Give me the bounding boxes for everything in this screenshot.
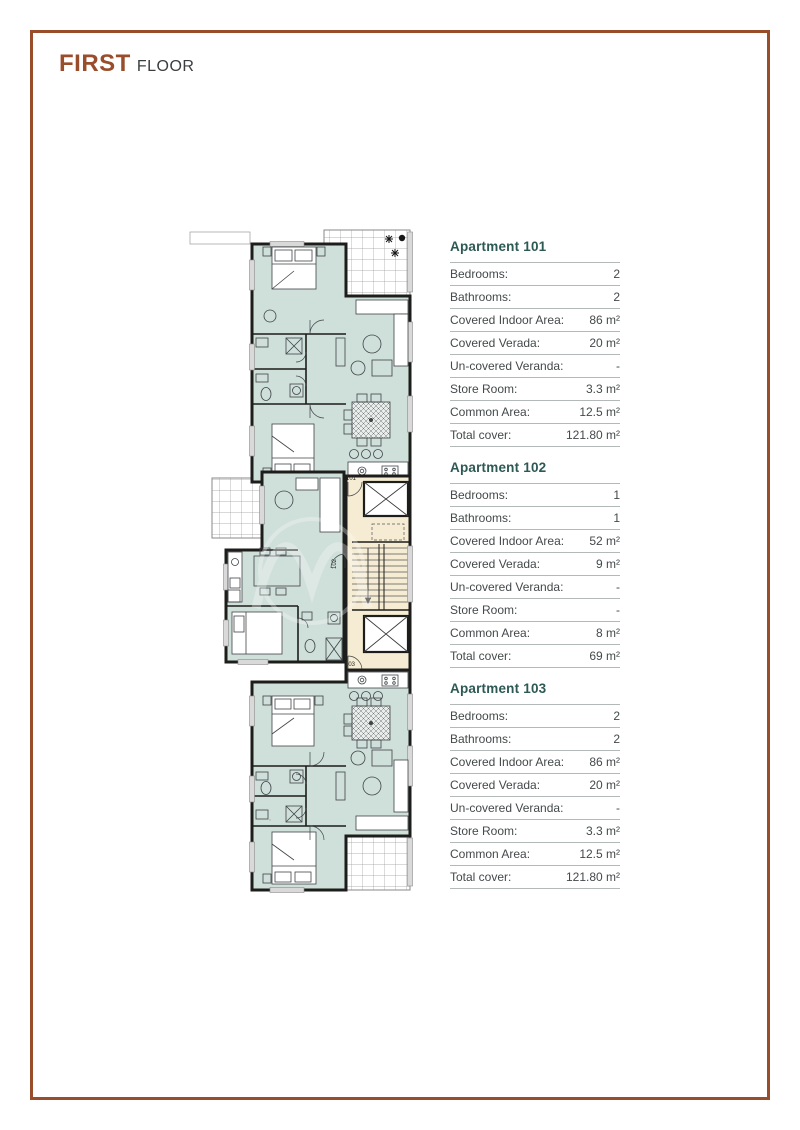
floor-plan: 101 102 103 (186, 226, 440, 894)
spec-row: Bedrooms: 2 (450, 705, 620, 728)
spec-row: Store Room: - (450, 599, 620, 622)
spec-label: Bathrooms: (450, 290, 511, 304)
spec-label: Covered Verada: (450, 778, 540, 792)
spec-row: Bathrooms: 2 (450, 728, 620, 751)
spec-value: 121.80 m² (566, 428, 620, 442)
spec-row: Un-covered Veranda: - (450, 355, 620, 378)
spec-label: Total cover: (450, 428, 511, 442)
spec-label: Store Room: (450, 824, 517, 838)
spec-row: Common Area: 8 m² (450, 622, 620, 645)
elevator-shaft-top (364, 482, 408, 516)
spec-label: Total cover: (450, 649, 511, 663)
spec-rows: Bedrooms: 2 Bathrooms: 2 Covered Indoor … (450, 704, 620, 889)
unit-label-103: 103 (345, 662, 356, 668)
apartment-spec-table: Apartment 103 Bedrooms: 2 Bathrooms: 2 C… (450, 680, 620, 889)
spec-row: Total cover: 121.80 m² (450, 424, 620, 447)
spec-row: Store Room: 3.3 m² (450, 378, 620, 401)
spec-value: 86 m² (589, 313, 620, 327)
spec-label: Store Room: (450, 603, 517, 617)
unit-label-101: 101 (346, 476, 357, 482)
spec-label: Bedrooms: (450, 709, 508, 723)
spec-row: Covered Indoor Area: 86 m² (450, 751, 620, 774)
spec-value: 1 (613, 488, 620, 502)
spec-label: Covered Indoor Area: (450, 313, 564, 327)
spec-label: Un-covered Veranda: (450, 359, 563, 373)
elevator-shaft-bottom (364, 616, 408, 652)
apartment-title: Apartment 102 (450, 459, 620, 477)
spec-label: Un-covered Veranda: (450, 801, 563, 815)
spec-value: 12.5 m² (579, 847, 620, 861)
spec-row: Bathrooms: 1 (450, 507, 620, 530)
roof-ledge (190, 232, 250, 244)
spec-row: Bathrooms: 2 (450, 286, 620, 309)
spec-row: Covered Verada: 20 m² (450, 332, 620, 355)
spec-value: 69 m² (589, 649, 620, 663)
spec-label: Bedrooms: (450, 267, 508, 281)
spec-row: Covered Verada: 9 m² (450, 553, 620, 576)
spec-row: Covered Indoor Area: 52 m² (450, 530, 620, 553)
apartment-tables: Apartment 101 Bedrooms: 2 Bathrooms: 2 C… (450, 238, 620, 901)
spec-value: 9 m² (596, 557, 620, 571)
spec-value: 2 (613, 290, 620, 304)
page-title: FIRSTFLOOR (59, 50, 194, 78)
spec-row: Total cover: 69 m² (450, 645, 620, 668)
spec-label: Bathrooms: (450, 732, 511, 746)
unit-label-102: 102 (332, 558, 338, 569)
apartment-spec-table: Apartment 101 Bedrooms: 2 Bathrooms: 2 C… (450, 238, 620, 447)
spec-label: Total cover: (450, 870, 511, 884)
spec-rows: Bedrooms: 2 Bathrooms: 2 Covered Indoor … (450, 262, 620, 447)
spec-value: 2 (613, 709, 620, 723)
spec-label: Common Area: (450, 847, 530, 861)
spec-value: 8 m² (596, 626, 620, 640)
apartment-title: Apartment 101 (450, 238, 620, 256)
spec-value: 2 (613, 732, 620, 746)
spec-value: 121.80 m² (566, 870, 620, 884)
spec-value: 20 m² (589, 778, 620, 792)
spec-label: Store Room: (450, 382, 517, 396)
spec-value: 1 (613, 511, 620, 525)
spec-value: 20 m² (589, 336, 620, 350)
spec-row: Total cover: 121.80 m² (450, 866, 620, 889)
spec-rows: Bedrooms: 1 Bathrooms: 1 Covered Indoor … (450, 483, 620, 668)
spec-label: Common Area: (450, 626, 530, 640)
spec-value: - (616, 359, 620, 373)
spec-value: 3.3 m² (586, 382, 620, 396)
spec-value: 52 m² (589, 534, 620, 548)
spec-label: Covered Verada: (450, 336, 540, 350)
spec-value: 3.3 m² (586, 824, 620, 838)
spec-row: Common Area: 12.5 m² (450, 401, 620, 424)
title-floor-word: FLOOR (137, 58, 195, 75)
spec-label: Bedrooms: (450, 488, 508, 502)
spec-value: 86 m² (589, 755, 620, 769)
spec-label: Covered Indoor Area: (450, 755, 564, 769)
spec-value: - (616, 801, 620, 815)
title-floor-number: FIRST (59, 50, 131, 77)
spec-value: 2 (613, 267, 620, 281)
spec-label: Un-covered Veranda: (450, 580, 563, 594)
spec-label: Covered Verada: (450, 557, 540, 571)
spec-value: - (616, 580, 620, 594)
veranda-102 (212, 478, 261, 538)
spec-label: Bathrooms: (450, 511, 511, 525)
spec-label: Covered Indoor Area: (450, 534, 564, 548)
spec-row: Un-covered Veranda: - (450, 797, 620, 820)
spec-row: Store Room: 3.3 m² (450, 820, 620, 843)
spec-row: Bedrooms: 1 (450, 484, 620, 507)
apartment-title: Apartment 103 (450, 680, 620, 698)
spec-row: Un-covered Veranda: - (450, 576, 620, 599)
spec-row: Bedrooms: 2 (450, 263, 620, 286)
spec-value: - (616, 603, 620, 617)
spec-row: Covered Verada: 20 m² (450, 774, 620, 797)
spec-label: Common Area: (450, 405, 530, 419)
apartment-spec-table: Apartment 102 Bedrooms: 1 Bathrooms: 1 C… (450, 459, 620, 668)
spec-row: Covered Indoor Area: 86 m² (450, 309, 620, 332)
spec-value: 12.5 m² (579, 405, 620, 419)
floor-plan-page: FIRSTFLOOR (0, 0, 800, 1130)
spec-row: Common Area: 12.5 m² (450, 843, 620, 866)
